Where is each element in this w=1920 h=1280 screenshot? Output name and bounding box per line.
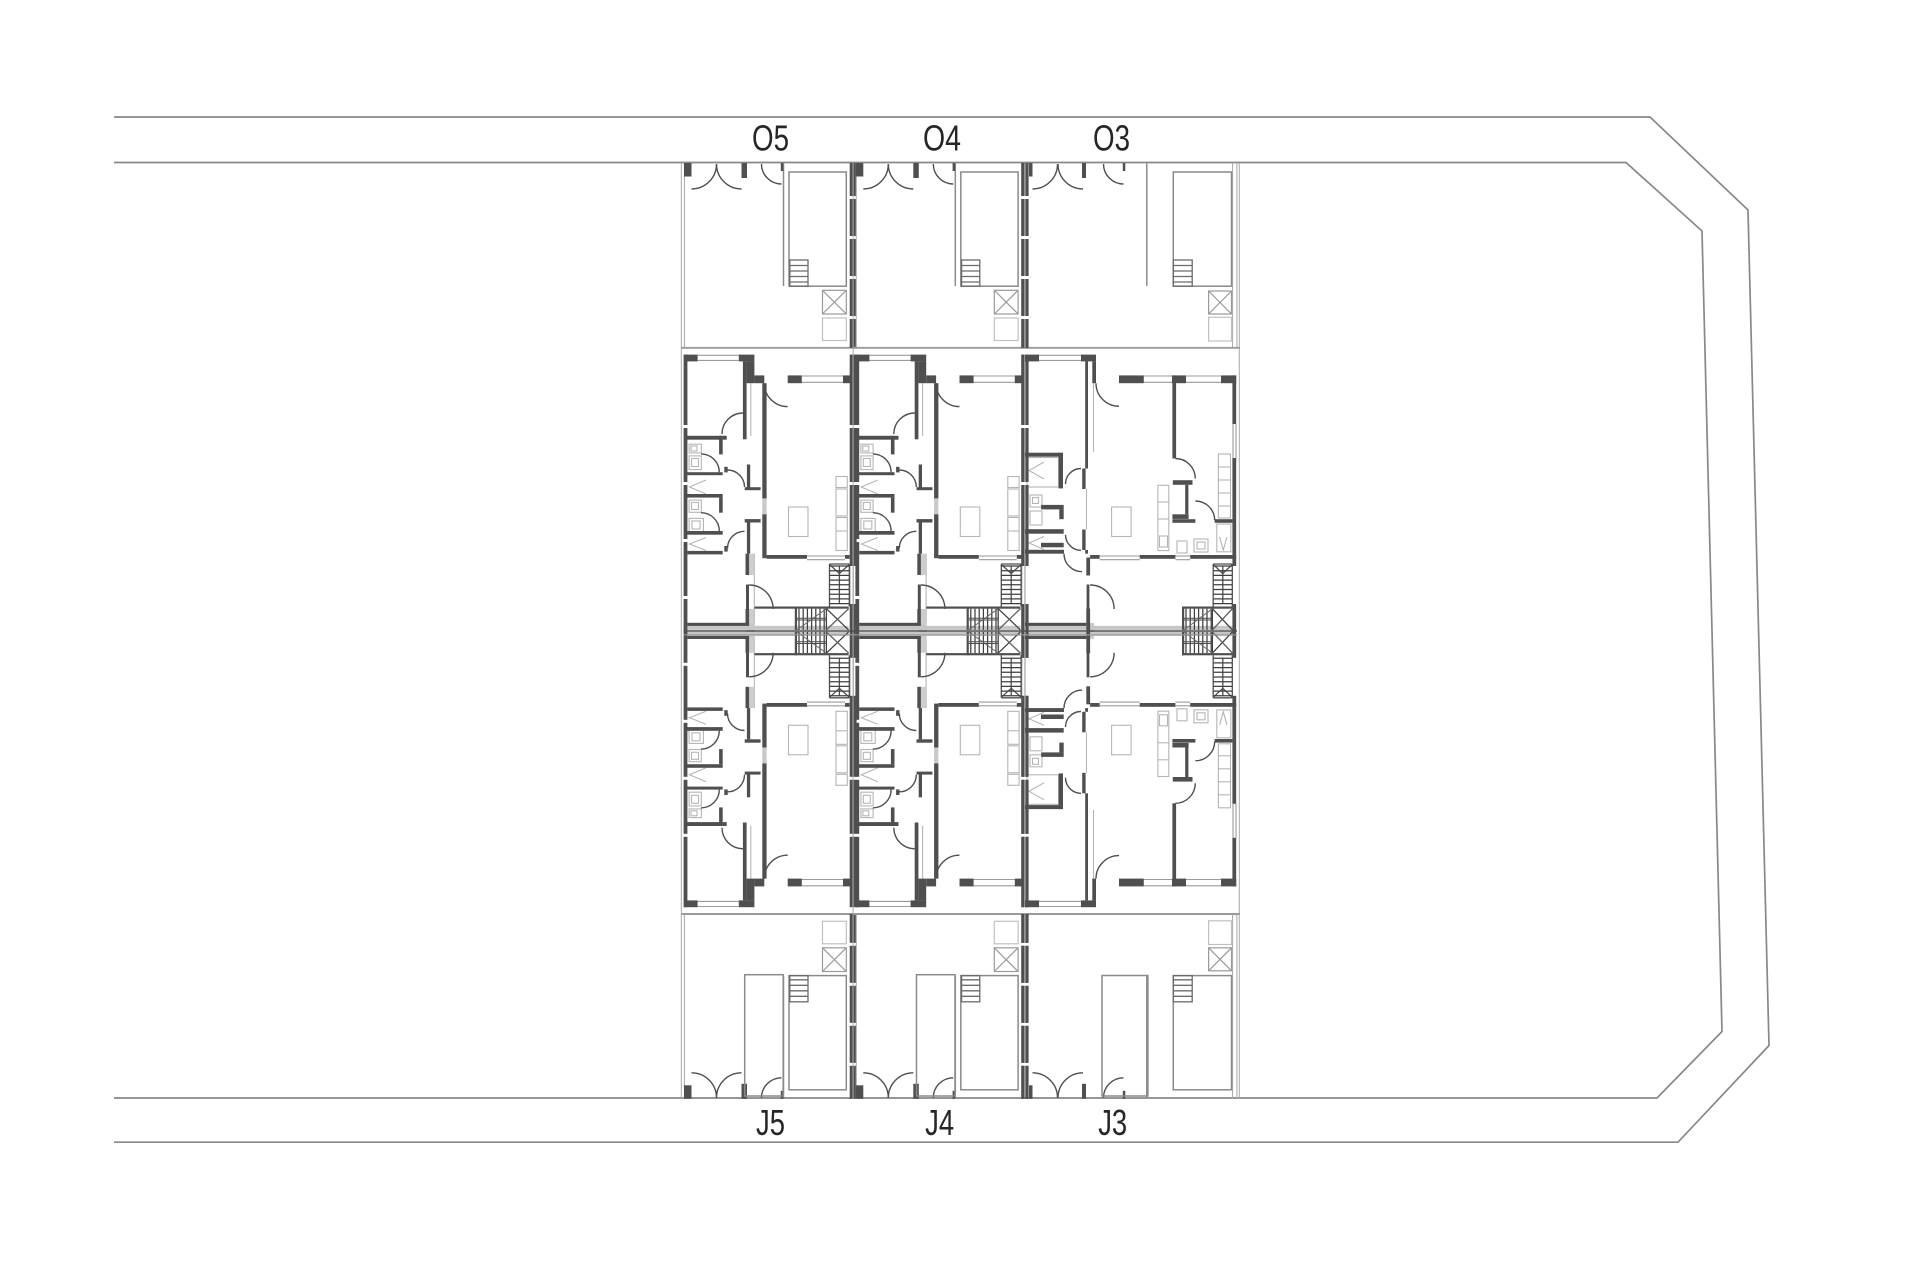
svg-text:O5: O5 (752, 118, 789, 159)
svg-text:J4: J4 (925, 1102, 954, 1143)
svg-text:J5: J5 (756, 1102, 785, 1143)
svg-text:O3: O3 (1093, 118, 1130, 159)
svg-text:J3: J3 (1098, 1102, 1127, 1143)
svg-text:O4: O4 (923, 118, 961, 159)
